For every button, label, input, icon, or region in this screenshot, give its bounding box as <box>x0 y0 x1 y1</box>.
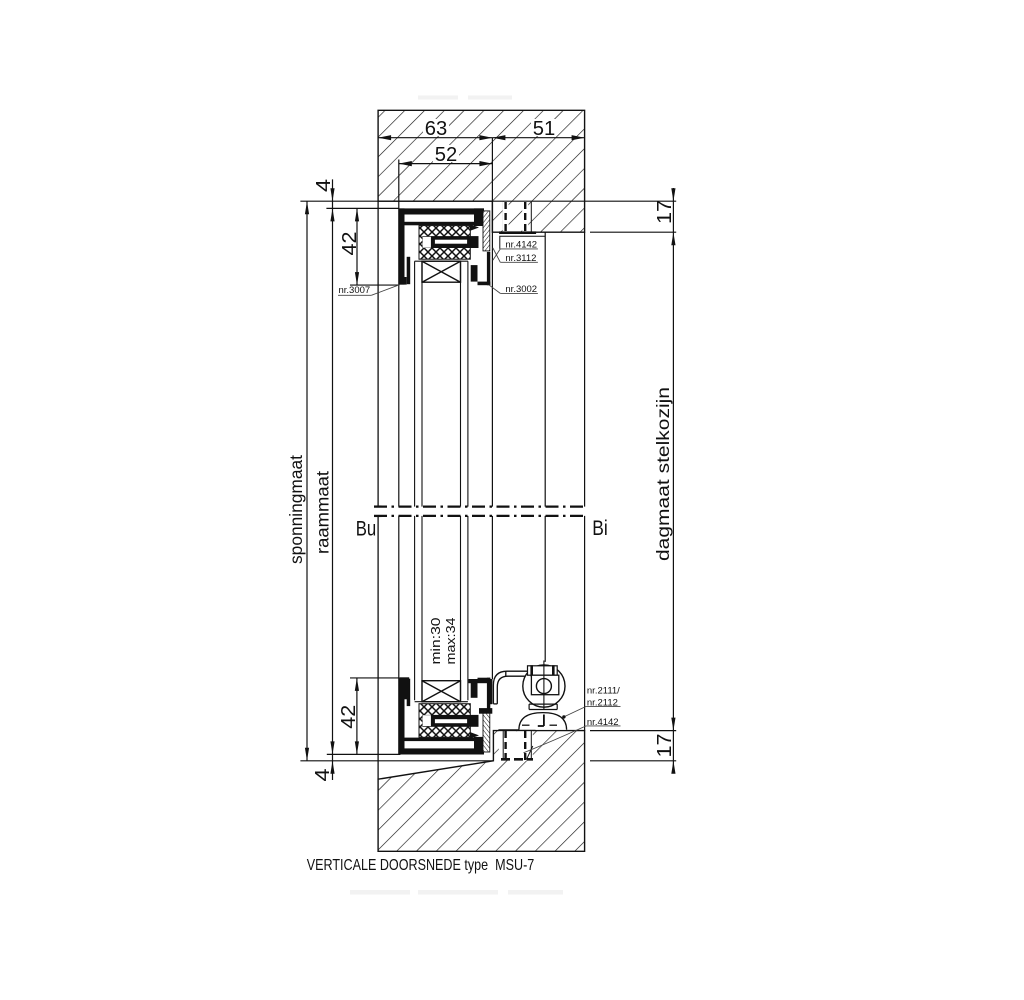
svg-text:dagmaat stelkozijn: dagmaat stelkozijn <box>653 387 673 561</box>
svg-text:42: 42 <box>339 232 361 256</box>
svg-text:4: 4 <box>312 769 334 782</box>
svg-text:4: 4 <box>313 179 335 192</box>
svg-text:VERTICALE DOORSNEDE type MSU-: VERTICALE DOORSNEDE type MSU-7 <box>307 857 535 874</box>
svg-text:42: 42 <box>338 705 360 729</box>
svg-text:Bu: Bu <box>356 517 377 541</box>
svg-text:51: 51 <box>533 118 556 140</box>
svg-text:Bi: Bi <box>592 516 608 540</box>
svg-text:17: 17 <box>654 200 676 224</box>
svg-text:63: 63 <box>425 118 448 140</box>
svg-text:17: 17 <box>654 734 676 758</box>
svg-text:nr.3007: nr.3007 <box>339 285 371 296</box>
svg-text:nr.2111/: nr.2111/ <box>587 686 620 697</box>
svg-text:sponningmaat: sponningmaat <box>286 455 306 564</box>
svg-text:max:34: max:34 <box>443 618 458 665</box>
svg-text:min:30: min:30 <box>428 618 443 665</box>
svg-text:raammaat: raammaat <box>313 471 333 554</box>
svg-text:52: 52 <box>435 144 458 166</box>
